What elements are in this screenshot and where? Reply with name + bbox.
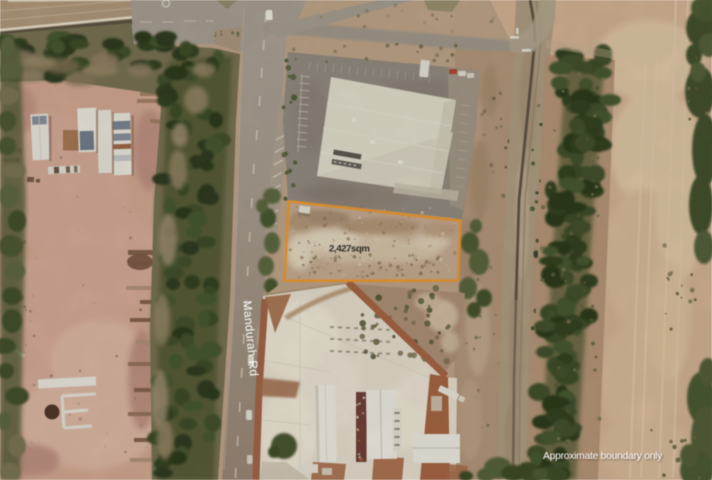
svg-text:Approximate boundary only: Approximate boundary only xyxy=(543,451,663,462)
svg-text:2,427sqm: 2,427sqm xyxy=(329,244,370,255)
